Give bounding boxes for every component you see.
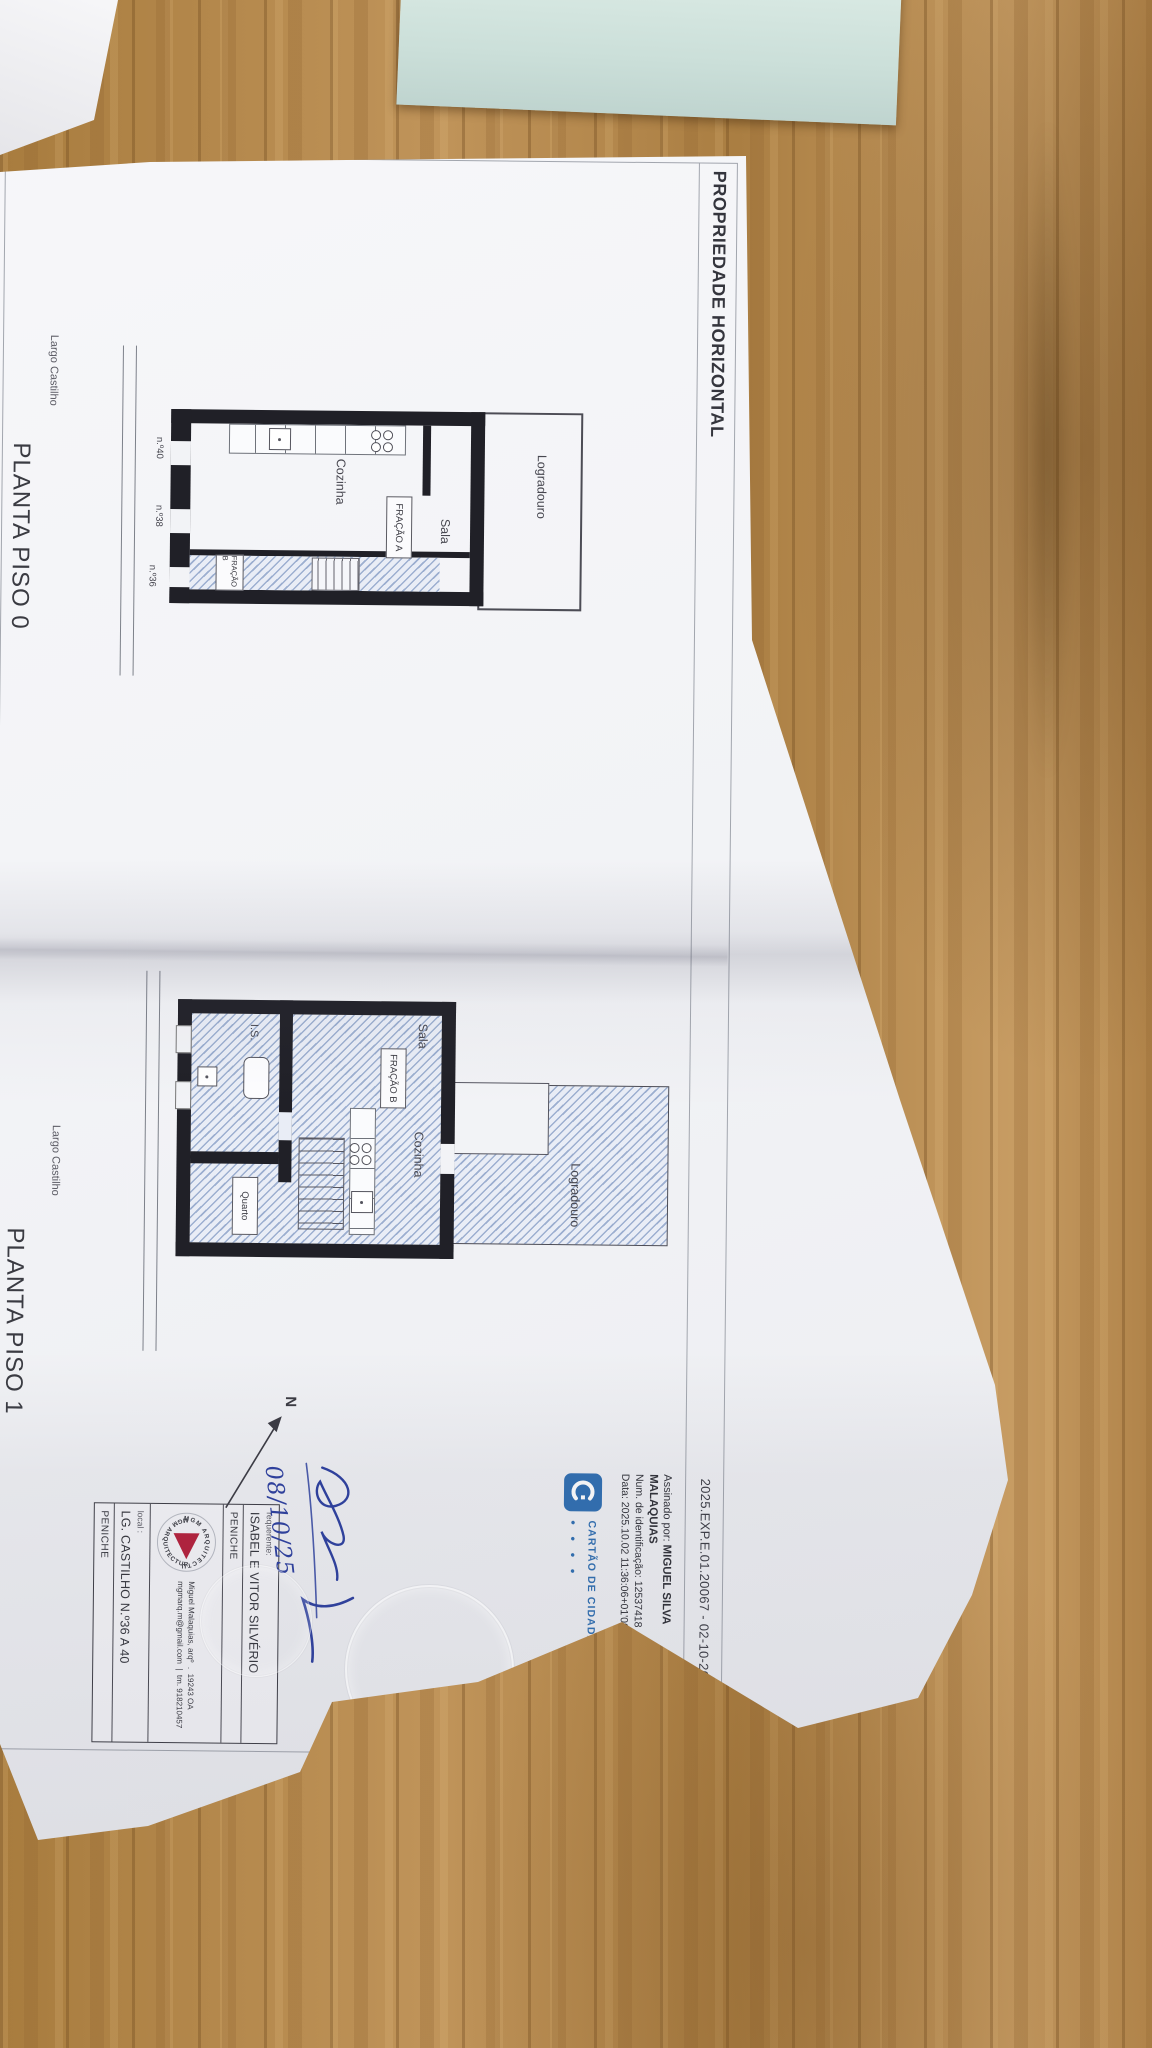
piso1-shed <box>453 1082 550 1155</box>
title-block-local-row: local : LG. CASTILHO N.º36 A 40 <box>111 1503 149 1741</box>
piso1-cozinha-label: Cozinha <box>411 1132 425 1178</box>
piso1-window2 <box>175 1081 191 1109</box>
wood-grain-streak <box>1020 120 1074 780</box>
photo-scene: PROPRIEDADE HORIZONTAL 2025.EXP.E.01.200… <box>0 0 1152 2048</box>
piso1-logradouro-label: Logradouro <box>568 1163 583 1227</box>
digital-signature-block: Assinado por: MIGUEL SILVA MALAQUIAS Num… <box>617 1474 675 1632</box>
piso1-wall-top <box>439 1002 456 1259</box>
piso1-street-name: Largo Castilho <box>49 1125 62 1196</box>
piso0-title: PLANTA PISO 0 <box>5 442 35 630</box>
piso1-kitchen-counter <box>349 1108 376 1235</box>
piso0-stairs <box>311 557 359 591</box>
piso1-wall-quarto <box>190 1151 278 1164</box>
local-label: local : <box>133 1511 145 1735</box>
piso0-street-line2 <box>120 346 124 676</box>
piso1-sink-icon <box>351 1191 373 1213</box>
piso1-wall-mid <box>278 1000 293 1182</box>
document-title: PROPRIEDADE HORIZONTAL <box>706 171 730 438</box>
cartao-cidadao-logo: CARTÃO DE CIDADÃO • • • • <box>562 1473 602 1653</box>
piso1-bath-sink-icon <box>197 1066 217 1086</box>
local-value: LG. CASTILHO N.º36 A 40 <box>116 1511 132 1735</box>
embossed-stamp-inner <box>200 1565 312 1677</box>
piso0-street-line1 <box>133 346 137 676</box>
piso1-stairs <box>298 1137 345 1229</box>
piso0-sala-label: Sala <box>438 519 452 544</box>
north-arrow-glyph <box>218 1390 299 1521</box>
teal-sheet <box>396 0 903 125</box>
piso0-street-name: Largo Castilho <box>47 335 60 406</box>
architect-reg: 19243 OA <box>186 1674 195 1710</box>
piso0-wall-top <box>469 412 485 606</box>
piso0-door-n36 <box>169 567 189 587</box>
signer-name-2: MALAQUIAS <box>646 1474 659 1544</box>
north-arrow: N <box>213 1390 299 1521</box>
piso1-title: PLANTA PISO 1 <box>0 1227 29 1415</box>
mgm-arquitectura-logo: MGM ARQUITECTURA MGM ARQUITECTURA <box>155 1511 218 1574</box>
architect-name: Miguel Malaquias, arqº <box>186 1581 196 1662</box>
piso1-door-yard <box>440 1144 454 1174</box>
piso1-wall-right <box>175 1242 453 1259</box>
piso0-logradouro-yard <box>477 412 583 611</box>
piso0-n40-label: n.º40 <box>154 437 165 459</box>
piso0-sink-icon <box>269 428 291 450</box>
signature-date: Data: 2025.10.02 11:36:06+01'00' <box>617 1474 633 1631</box>
cc-badge-glyph <box>570 1479 596 1505</box>
piso1-wall-left <box>178 999 456 1016</box>
piso0-logradouro-label: Logradouro <box>534 455 549 519</box>
piso1-fracaoB-label: FRAÇÃO B <box>380 1048 407 1108</box>
signer-name-1: MIGUEL SILVA <box>660 1545 673 1625</box>
cartao-cidadao-dots: • • • • <box>564 1520 580 1653</box>
piso0-door-n38 <box>170 509 190 533</box>
piso0-n36-label: n.º36 <box>146 565 157 587</box>
piso0-door-n40 <box>171 441 191 465</box>
piso1-quarto-label: Quarto <box>232 1177 259 1235</box>
piso0-stove-icon <box>369 428 395 454</box>
document-content: PROPRIEDADE HORIZONTAL 2025.EXP.E.01.200… <box>0 149 744 1767</box>
piso0-fracaoB-label: FRAÇÃO B <box>215 554 243 590</box>
piso0-fracaoA-label: FRAÇÃO A <box>386 496 413 558</box>
plan-piso0: Logradouro FRAÇÃO B <box>109 390 592 675</box>
signed-by-label: Assinado por: <box>660 1474 673 1541</box>
architect-email: mgmarq.m@gmail.com <box>175 1581 185 1664</box>
piso1-is-label: I.S. <box>248 1024 260 1041</box>
piso1-bathtub-icon <box>243 1057 269 1099</box>
piso0-cozinha-label: Cozinha <box>333 459 347 505</box>
piso1-sala-label: Sala <box>416 1024 430 1049</box>
piso0-wall-stub <box>422 426 431 496</box>
document-reference: 2025.EXP.E.01.20067 - 02-10-2025 <box>696 1479 713 1694</box>
piso1-door-mid <box>279 1112 292 1140</box>
piso1-window1 <box>176 1025 192 1053</box>
piso0-n38-label: n.º38 <box>153 505 164 527</box>
piso1-stove-icon <box>347 1141 373 1167</box>
cartao-cidadao-icon <box>564 1473 602 1511</box>
signer-id: Num. de identificação: 12537418 <box>631 1474 647 1631</box>
plan-piso1: Logradouro <box>137 981 680 1287</box>
title-block-municipality-bottom: PENICHE <box>92 1503 113 1741</box>
north-label: N <box>282 1396 299 1407</box>
architect-phone: tm. 918210457 <box>175 1675 185 1728</box>
